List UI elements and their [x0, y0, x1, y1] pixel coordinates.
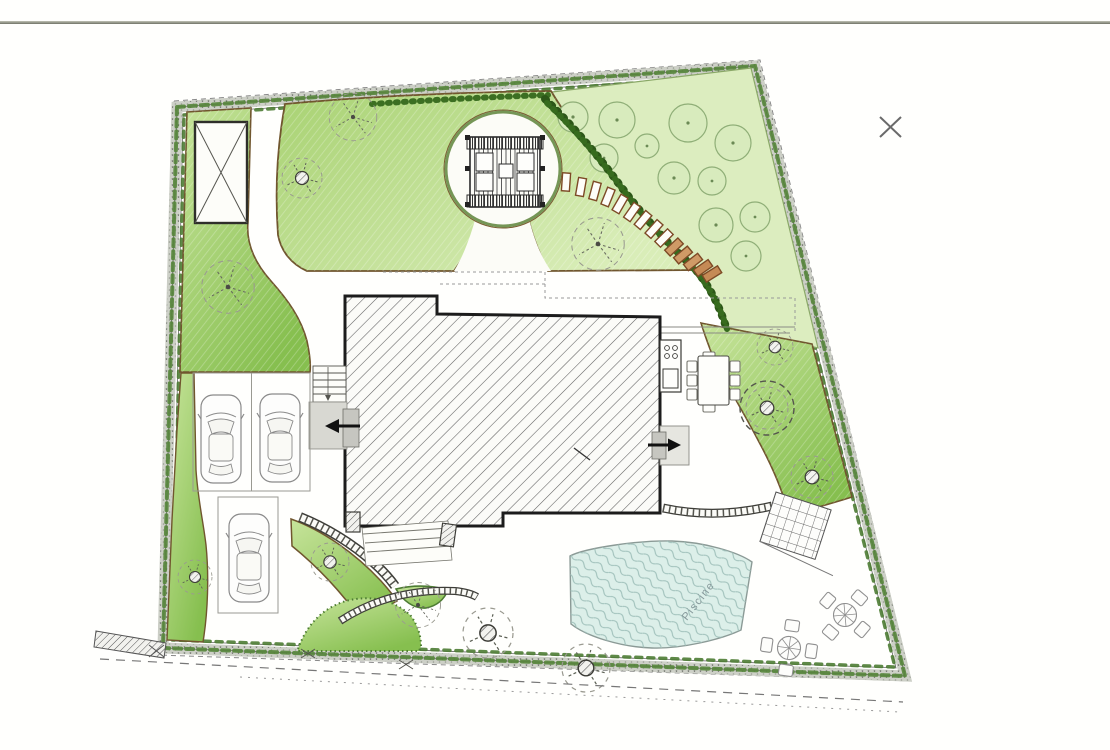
car [257, 394, 303, 482]
gazebo-deck [465, 135, 545, 207]
dining-set [687, 352, 740, 412]
door-east [648, 426, 689, 465]
door-west [309, 402, 360, 449]
outdoor-kitchen [660, 340, 681, 392]
car [226, 514, 272, 602]
retaining-wall-east [663, 506, 772, 513]
driveway-strip [94, 631, 166, 658]
car [198, 395, 244, 483]
pool: Piscine [570, 541, 752, 648]
bistro-set [806, 576, 885, 655]
entrance-steps-west [313, 366, 346, 402]
scanned-plan-page: Piscine [0, 0, 1110, 750]
survey-x-mark [880, 117, 901, 137]
site-plan-drawing: Piscine [0, 0, 1110, 750]
garage-box [195, 122, 247, 223]
house [345, 296, 660, 526]
